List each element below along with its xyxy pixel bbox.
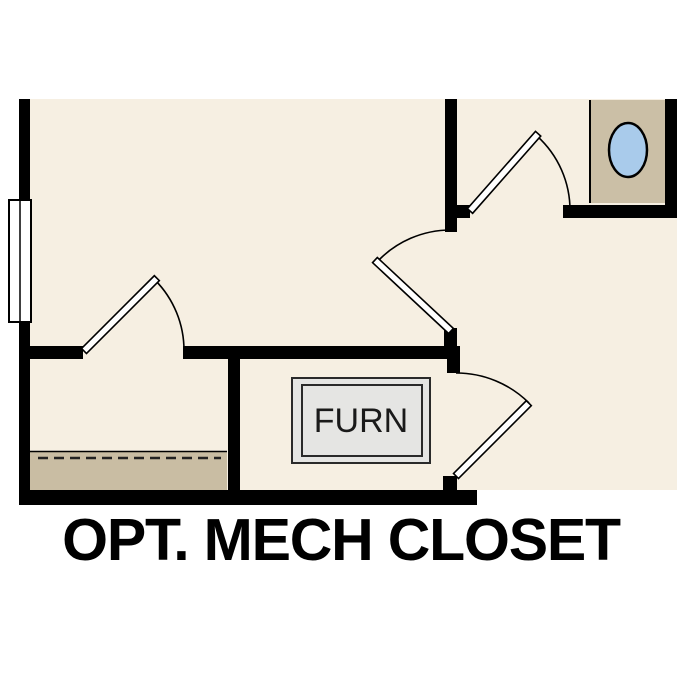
wall-fixture-room-bottom xyxy=(563,205,677,218)
wall-stub-door3 xyxy=(443,476,457,491)
wall-bottom xyxy=(19,490,477,505)
wall-fixture-room-right xyxy=(665,99,677,218)
toilet-fixture-icon xyxy=(609,123,647,177)
furnace-unit: FURN xyxy=(292,378,430,463)
plan-title: OPT. MECH CLOSET xyxy=(62,507,621,573)
floor-plan-drawing: FURN OPT. MECH CLOSET xyxy=(0,0,687,687)
wall-mid-main xyxy=(183,346,460,359)
floor-plan-page: FURN OPT. MECH CLOSET xyxy=(0,0,687,687)
wall-closet-right xyxy=(447,359,460,373)
furnace-label: FURN xyxy=(314,402,408,440)
window-symbol xyxy=(9,200,31,322)
wall-room-divider xyxy=(445,99,457,232)
wall-closet-left xyxy=(228,346,240,505)
stair-landing xyxy=(30,451,227,490)
fixture-room xyxy=(590,100,665,203)
wall-mid-left xyxy=(30,346,83,359)
